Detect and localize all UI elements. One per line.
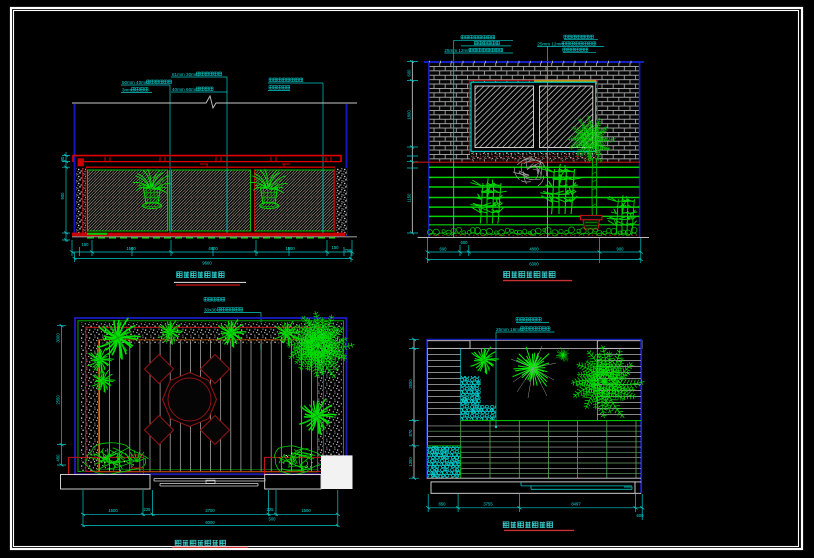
svg-text:870: 870 [408, 429, 413, 437]
svg-text:25mm 18mm: 25mm 18mm [496, 327, 523, 332]
svg-text:225: 225 [144, 507, 152, 512]
svg-text:25mm 12mm: 25mm 12mm [444, 48, 471, 53]
svg-text:4800: 4800 [208, 246, 218, 251]
svg-text:1350: 1350 [408, 457, 413, 467]
svg-text:50mm 40mm: 50mm 40mm [122, 80, 149, 85]
svg-text:600: 600 [440, 247, 448, 252]
svg-text:80: 80 [60, 156, 65, 161]
svg-text:600: 600 [407, 69, 412, 77]
svg-text:1800: 1800 [407, 110, 412, 120]
svg-text:81mm 30mm: 81mm 30mm [172, 72, 199, 77]
svg-text:1500: 1500 [285, 246, 295, 251]
svg-text:2550: 2550 [408, 379, 413, 389]
svg-text:4800: 4800 [529, 247, 539, 252]
svg-text:150: 150 [332, 245, 340, 250]
svg-text:1500: 1500 [301, 508, 311, 513]
svg-text:6300: 6300 [529, 262, 539, 267]
svg-text:150: 150 [82, 242, 90, 247]
svg-text:225: 225 [267, 507, 275, 512]
svg-text:1500: 1500 [126, 246, 136, 251]
svg-text:9600: 9600 [202, 261, 212, 266]
svg-text:3755: 3755 [483, 502, 493, 507]
svg-text:2550: 2550 [56, 395, 61, 405]
svg-text:500: 500 [269, 517, 277, 522]
svg-text:1150: 1150 [407, 193, 412, 203]
svg-text:6000: 6000 [205, 520, 215, 525]
svg-text:3mm: 3mm [122, 88, 132, 93]
svg-text:30x30: 30x30 [204, 308, 217, 313]
svg-text:40mm 60mm: 40mm 60mm [172, 87, 199, 92]
svg-text:600: 600 [637, 513, 645, 518]
svg-text:8497: 8497 [571, 502, 581, 507]
svg-text:3000: 3000 [56, 333, 61, 343]
svg-text:25mm 12mm: 25mm 12mm [537, 42, 564, 47]
svg-text:450: 450 [56, 454, 61, 462]
svg-text:2700: 2700 [205, 508, 215, 513]
svg-text:850: 850 [439, 502, 447, 507]
svg-text:600: 600 [461, 240, 469, 245]
svg-text:900: 900 [60, 192, 65, 200]
svg-text:1500: 1500 [108, 508, 118, 513]
svg-text:900: 900 [617, 247, 625, 252]
